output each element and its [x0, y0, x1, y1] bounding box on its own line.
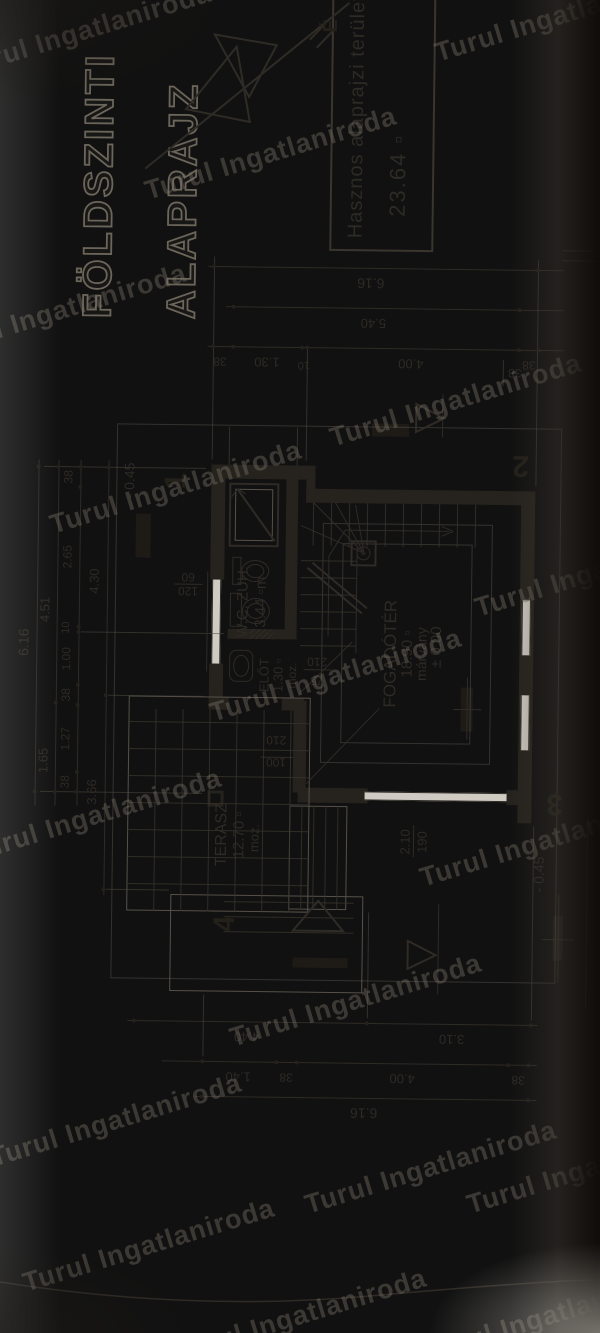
floor-plan-photo: FÖLDSZINTI ALAPRAJZ Hasznos alaprajzi te…: [0, 0, 600, 1333]
